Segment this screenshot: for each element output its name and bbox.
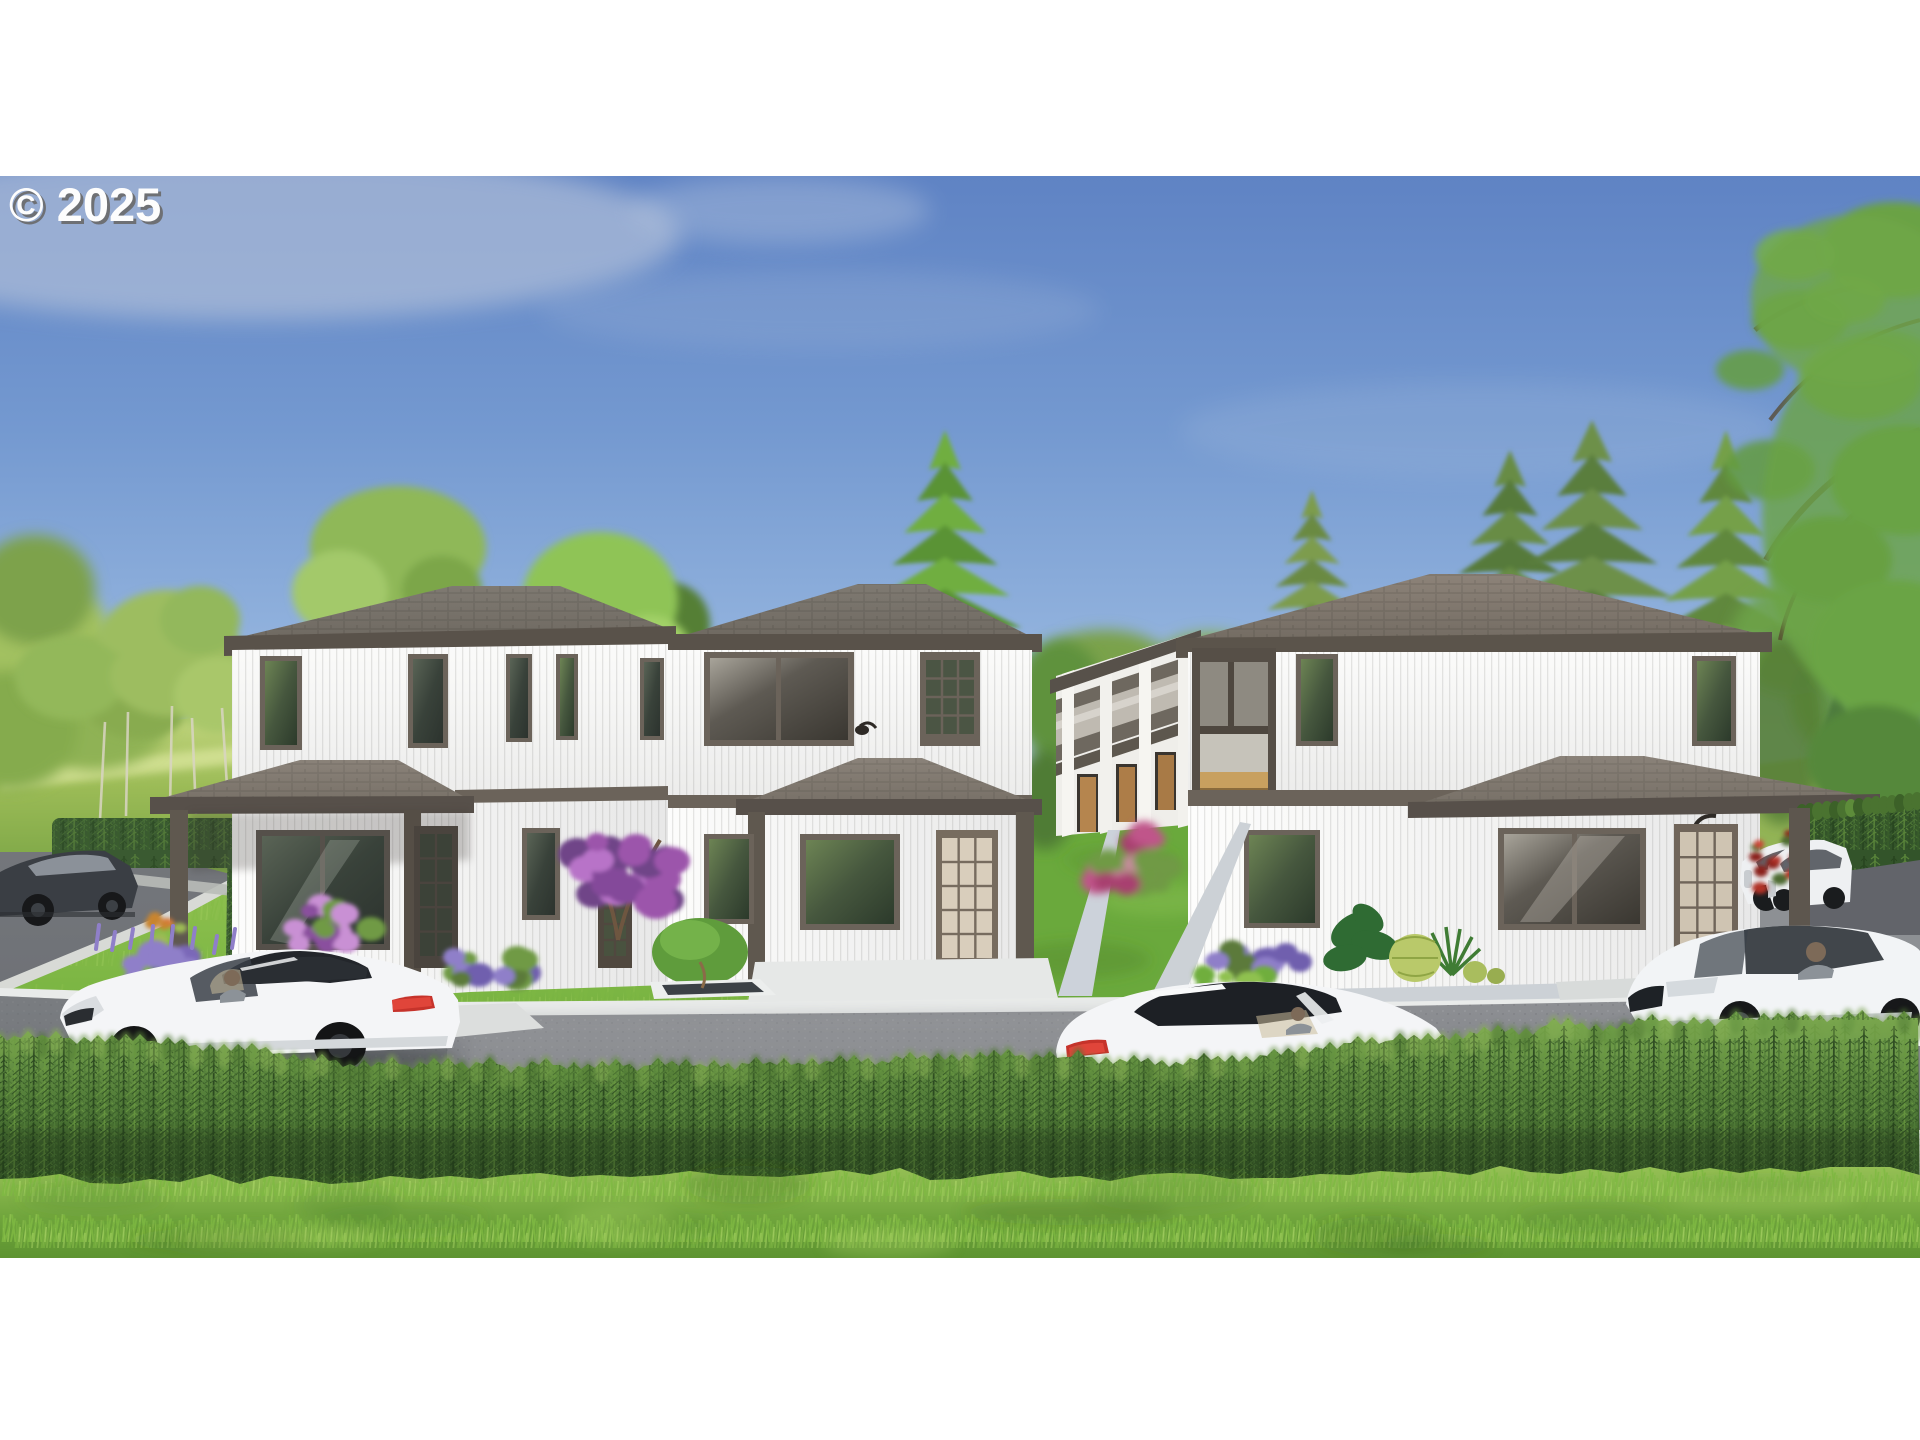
svg-text:© 2025: © 2025 — [9, 178, 161, 231]
